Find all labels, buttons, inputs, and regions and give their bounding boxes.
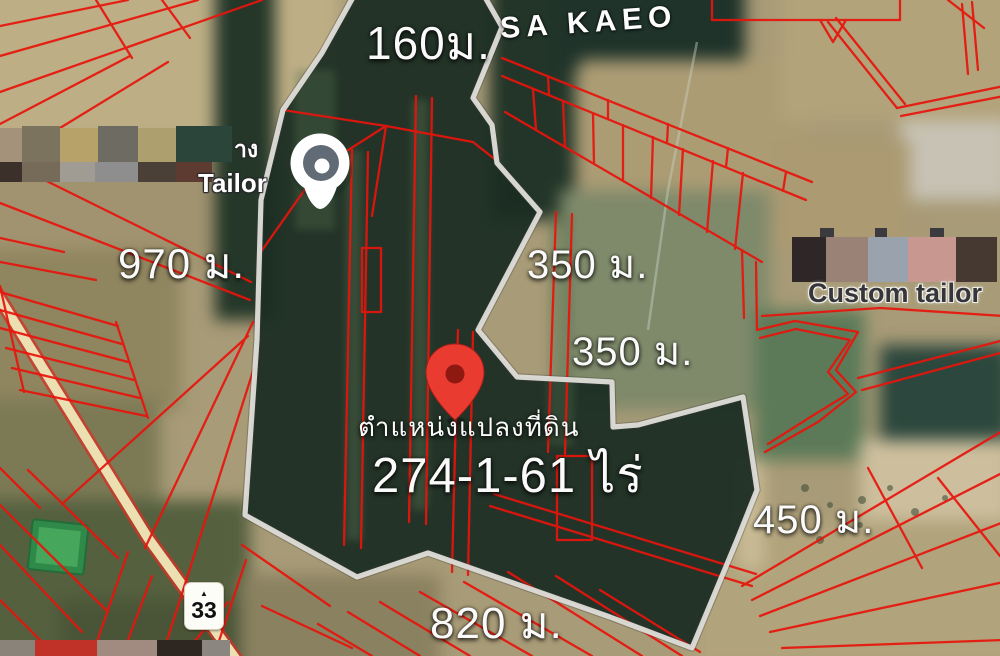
measurement-west: 970 ม. (118, 243, 245, 285)
satellite-map-canvas[interactable]: 160ม. SA KAEO าง Tailor 970 ม. 350 ม. Cu… (0, 0, 1000, 656)
poi-label-tailor: Tailor (198, 170, 267, 196)
measurement-east-lower: 450 ม. (753, 500, 874, 540)
map-graphics-layer (0, 0, 1000, 656)
censor-block-bottom-left (0, 640, 230, 656)
route-33-shield: ▲ 33 (184, 582, 224, 630)
pond (28, 519, 89, 575)
poi-label-custom-tailor: Custom tailor (808, 280, 982, 307)
measurement-top: 160ม. (366, 20, 491, 66)
measurement-east-mid: 350 ม. (572, 332, 693, 372)
plot-area-label: 274-1-61 ไร่ (372, 452, 644, 501)
plot-marker-caption: ตำแหน่งแปลงที่ดิน (358, 414, 580, 440)
measurement-east-upper: 350 ม. (527, 245, 648, 285)
route-number: 33 (191, 599, 217, 622)
poi-label-tailor-partial: าง (234, 138, 258, 161)
measurement-south: 820 ม. (430, 602, 563, 646)
